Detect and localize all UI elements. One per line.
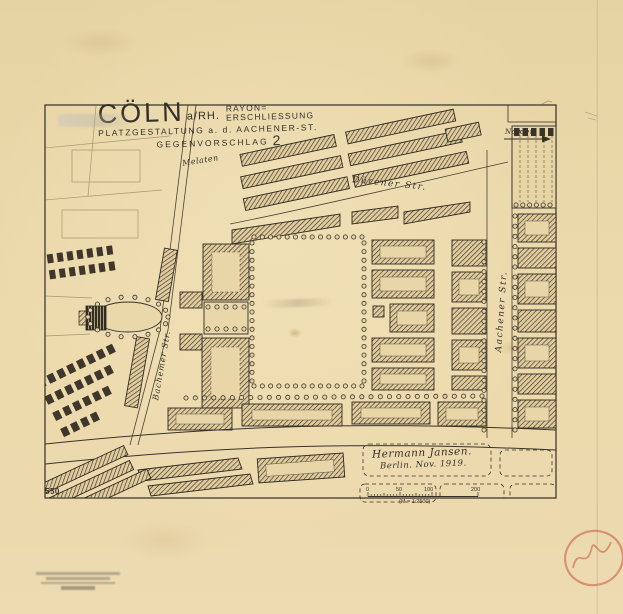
building-block-ne [512,126,558,208]
building-blocks-east2 [452,240,486,390]
red-collection-mark [559,525,623,591]
scale-tick-200: 200 [471,487,480,493]
terrace-rows-upper [47,245,116,279]
bleedthrough-stamp [30,570,126,592]
pencil-marks [585,112,597,120]
title-block: CÖLN a/RH. RAYON= ERSCHLIESSUNG PLATZGES… [97,96,324,151]
red-pencil-mark [542,101,552,104]
faded-stamp [58,114,128,127]
building-blocks-wedge [232,202,470,244]
scale-ratio: (M = 1:2500) [399,499,430,505]
title-city-suffix: a/RH. [187,111,220,123]
terrace-rows-lower [36,344,139,437]
scale-tick-0: 0 [366,487,369,493]
map-drawing [0,0,623,614]
oval-plaza [79,302,162,332]
building-blocks-east1 [372,240,434,390]
scale-tick-100: 100 [424,487,433,493]
plan-sheet: CÖLN a/RH. RAYON= ERSCHLIESSUNG PLATZGES… [0,0,623,614]
title-proposal-number: 2 [272,135,282,146]
building-blocks-east3 [518,214,556,428]
building-blocks-bottomleft [32,441,151,525]
scale-tick-50: 50 [396,487,402,493]
building-blocks-boulevard [138,453,345,496]
north-label: Norden [505,128,535,136]
title-erschliessung: ERSCHLIESSUNG [226,110,315,122]
sheet-number: 550 [45,487,60,496]
building-blocks-west [180,244,249,408]
